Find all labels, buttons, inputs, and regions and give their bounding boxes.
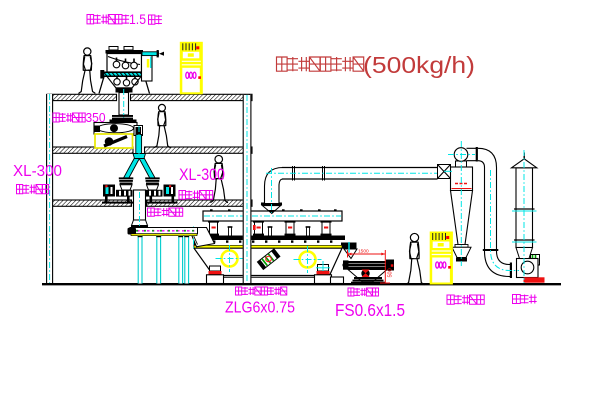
svg-text:500: 500 <box>387 268 393 277</box>
svg-text:1500: 1500 <box>358 249 369 255</box>
svg-text:350: 350 <box>86 111 106 125</box>
svg-text:XL-300: XL-300 <box>179 166 225 184</box>
svg-text:(500kg/h): (500kg/h) <box>363 52 475 78</box>
svg-text:FS0.6x1.5: FS0.6x1.5 <box>335 300 405 320</box>
svg-text:XL-300: XL-300 <box>13 163 62 180</box>
svg-text:1.5: 1.5 <box>129 12 146 27</box>
svg-text:ZLG6x0.75: ZLG6x0.75 <box>225 300 295 317</box>
